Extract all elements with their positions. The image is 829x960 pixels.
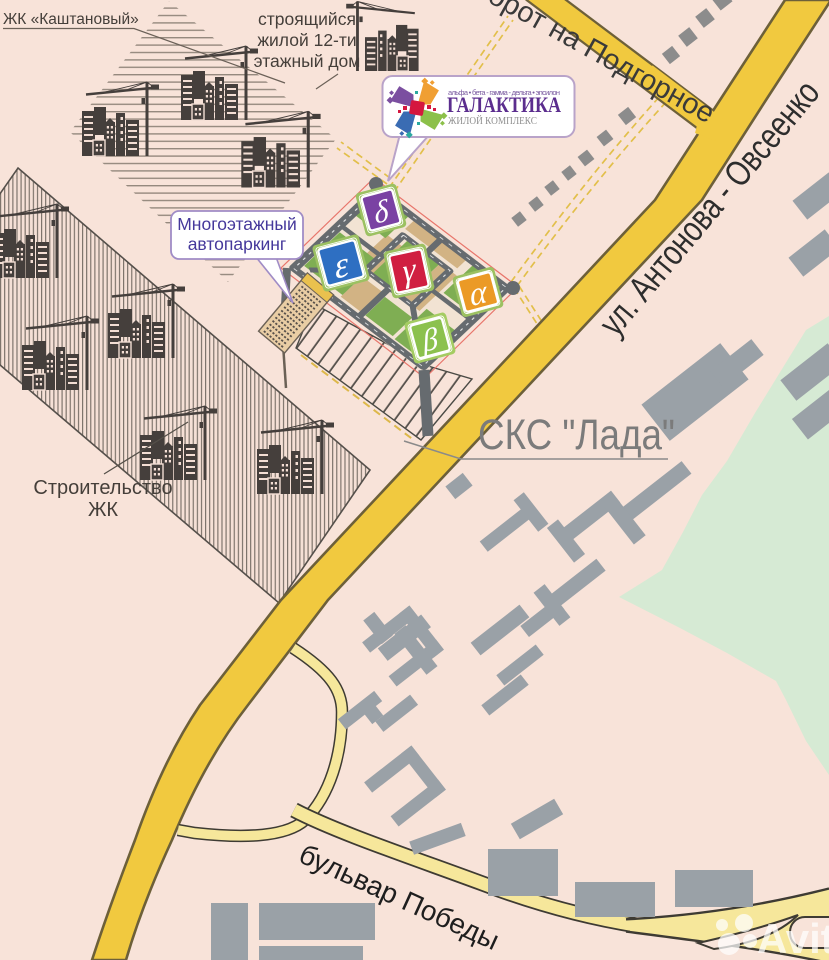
svg-text:Строительство: Строительство: [33, 477, 172, 499]
svg-text:автопаркинг: автопаркинг: [188, 234, 287, 254]
svg-text:ГАЛАКТИКА: ГАЛАКТИКА: [447, 92, 561, 117]
svg-text:ЖИЛОЙ КОМПЛЕКС: ЖИЛОЙ КОМПЛЕКС: [448, 115, 537, 127]
svg-text:строящийся: строящийся: [258, 9, 356, 29]
svg-text:жилой 12-ти: жилой 12-ти: [257, 30, 356, 50]
svg-text:ЖК: ЖК: [88, 499, 118, 521]
svg-text:Многоэтажный: Многоэтажный: [177, 214, 297, 234]
svg-text:СКС "Лада": СКС "Лада": [478, 411, 675, 459]
svg-text:ЖК «Каштановый»: ЖК «Каштановый»: [3, 11, 139, 28]
svg-text:этажный дом: этажный дом: [254, 51, 361, 71]
svg-text:Avito: Avito: [757, 915, 829, 960]
